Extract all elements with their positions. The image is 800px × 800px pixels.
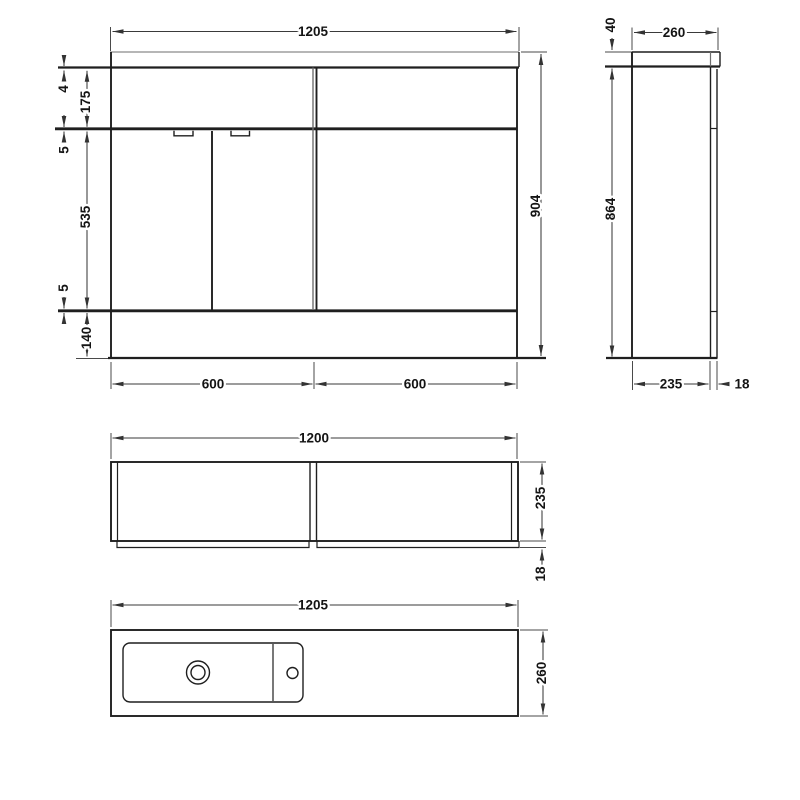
basin-waste-outer-circle [187,661,210,684]
vanity-unit-drawing: 1205 904 4 175 5 535 5 140 600 600 [0,0,800,800]
plan-dimensions: 1200 235 18 [111,431,548,582]
side-elevation-view [605,52,720,358]
technical-drawing-canvas: 1205 904 4 175 5 535 5 140 600 600 [0,0,800,800]
side-depth-dim-label: 260 [663,25,686,40]
basin-width-dim-label: 1205 [298,598,329,613]
plan-view [111,462,519,548]
plan-carcass-outline [111,462,518,541]
basin-waste-inner-circle [191,666,205,680]
side-door-thickness-dim-label: 18 [734,377,750,392]
plan-width-dim-label: 1200 [299,431,329,446]
front-right-door-handle [231,131,250,136]
side-dimensions: 40 260 864 235 18 [603,17,750,391]
basin-plan-view [111,630,518,716]
front-bottom-gap-dim-label: 5 [56,284,71,292]
side-cabinet-depth-dim-label: 235 [660,377,683,392]
front-drawer-height-dim-label: 175 [78,90,93,113]
front-left-door-handle [174,131,193,136]
basin-tap-hole [287,668,298,679]
side-cabinet-height-dim-label: 864 [603,197,618,220]
plan-front-thickness-dim-label: 18 [533,566,548,582]
front-plinth-dim-label: 140 [79,327,94,350]
front-right-width-dim-label: 600 [404,377,427,392]
basin-outline [123,643,303,702]
side-worktop-thickness-dim-label: 40 [603,17,618,32]
front-height-dim-label: 904 [528,194,543,217]
front-dimensions: 1205 904 4 175 5 535 5 140 600 600 [56,24,547,392]
front-width-dim-label: 1205 [298,24,329,39]
front-top-gap-dim-label: 5 [57,146,72,154]
front-door-height-dim-label: 535 [78,205,93,228]
basin-dimensions: 1205 260 [111,598,549,717]
plan-left-front-panel [117,541,309,548]
plan-depth-dim-label: 235 [533,486,548,509]
front-worktop-gap-dim-label: 4 [56,85,71,93]
front-elevation-view [55,52,546,359]
front-left-width-dim-label: 600 [202,377,225,392]
basin-depth-dim-label: 260 [534,662,549,685]
plan-right-front-panel [317,541,519,548]
